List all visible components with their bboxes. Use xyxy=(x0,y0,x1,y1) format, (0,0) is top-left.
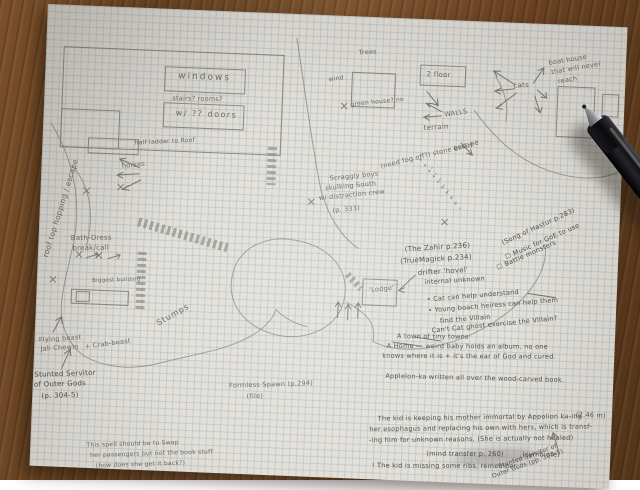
ladder-path-north xyxy=(271,147,273,185)
walls-arrow-2 xyxy=(424,114,442,121)
note-town-2: A Home — weird baby holds an album, no o… xyxy=(387,343,548,351)
note-cats: cats xyxy=(513,82,529,90)
cats-arrow-4 xyxy=(533,68,544,84)
horses-arrow-3 xyxy=(123,179,141,191)
cats-arrow-2 xyxy=(495,88,515,95)
stunted-servitor-arrow xyxy=(61,349,71,369)
escape-trail-dots xyxy=(418,159,458,204)
note-stairs-rooms: stairs? rooms? xyxy=(172,95,223,103)
cats-arrow-5 xyxy=(537,90,547,98)
note-town-1: A town of tiny towns xyxy=(397,333,469,341)
annex-room xyxy=(88,138,139,155)
note-stunted-servitor-l-2: of Outer Gods xyxy=(34,380,86,389)
note-windows: windows xyxy=(178,72,231,84)
note-formless-file: (file) xyxy=(247,393,264,401)
note-trees: Trees xyxy=(358,49,377,57)
note-terrain: terrain xyxy=(423,124,449,133)
graph-paper-sheet: roof top hopping / escape windows stairs… xyxy=(29,4,627,489)
hatched-paths xyxy=(135,142,367,318)
hatch-near-lodge xyxy=(347,274,362,289)
note-bath-dress-2: break/call xyxy=(72,245,109,253)
escape-trail-dots-2 xyxy=(430,168,462,209)
drifter-hovel-arrow xyxy=(399,274,416,293)
biggest-building-inner xyxy=(76,291,89,302)
horses-arrow-2 xyxy=(117,172,139,179)
note-town-3: knows where it is + it's the ear of God … xyxy=(382,353,556,361)
note-two-floor: 2 floor xyxy=(426,71,451,80)
note-bath-dress-1: Bath-Dress xyxy=(71,235,112,243)
x-marks xyxy=(50,91,452,298)
flying-beast-arrow xyxy=(53,316,63,332)
small-creek xyxy=(494,76,509,121)
lodge-arrow-2 xyxy=(345,304,352,320)
note-stunted-servitor-l-3: (p. 304-5) xyxy=(41,392,78,401)
brick-path-diagonal xyxy=(137,222,230,249)
pond-outline xyxy=(229,237,347,339)
cats-arrow-6 xyxy=(534,96,543,113)
central-road xyxy=(288,38,366,249)
arrows xyxy=(49,49,574,451)
pond-inlet xyxy=(275,309,308,326)
left-room xyxy=(60,109,119,149)
